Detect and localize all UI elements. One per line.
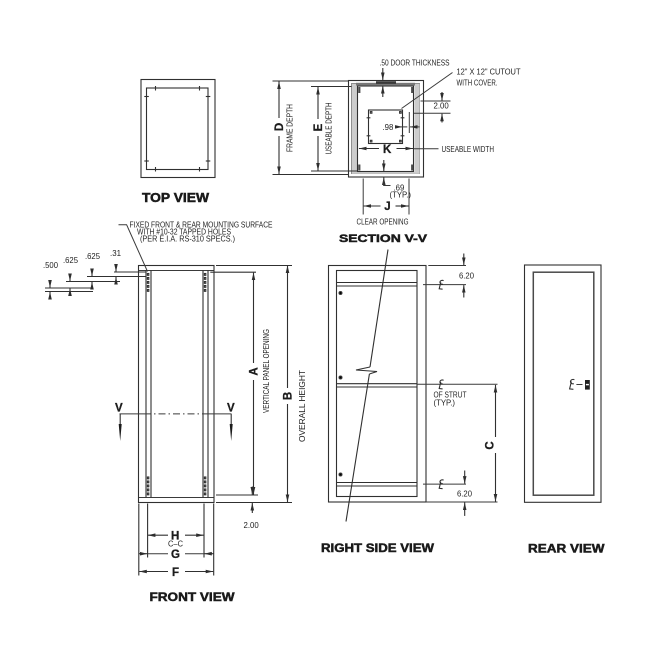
svg-text:.98: .98 — [383, 123, 394, 132]
svg-text:C: C — [485, 441, 497, 449]
svg-text:REAR VIEW: REAR VIEW — [528, 542, 605, 556]
svg-text:V: V — [227, 403, 235, 415]
svg-text:CLEAR OPENING: CLEAR OPENING — [357, 218, 409, 227]
svg-text:C–C: C–C — [168, 540, 183, 549]
svg-text:(TYP.): (TYP.) — [390, 191, 412, 200]
svg-text:B: B — [283, 392, 295, 400]
svg-text:G: G — [171, 549, 180, 561]
svg-text:USEABLE DEPTH: USEABLE DEPTH — [325, 103, 334, 155]
svg-text:.50 DOOR THICKNESS: .50 DOOR THICKNESS — [380, 59, 450, 68]
svg-text:FRONT VIEW: FRONT VIEW — [150, 590, 236, 604]
svg-text:.625: .625 — [63, 256, 79, 265]
svg-text:V: V — [115, 403, 123, 415]
svg-text:SECTION V-V: SECTION V-V — [339, 233, 428, 245]
svg-text:(PER E.I.A. RS-310 SPECS.): (PER E.I.A. RS-310 SPECS.) — [140, 235, 235, 244]
svg-text:F: F — [172, 567, 179, 579]
svg-text:VERTICAL PANEL OPENING: VERTICAL PANEL OPENING — [262, 329, 271, 413]
svg-text:(TYP.): (TYP.) — [434, 398, 456, 407]
svg-text:6.20: 6.20 — [459, 272, 475, 281]
svg-text:K: K — [383, 144, 392, 156]
svg-text:J: J — [384, 201, 390, 213]
svg-text:RIGHT SIDE VIEW: RIGHT SIDE VIEW — [321, 541, 435, 555]
svg-text:USEABLE WIDTH: USEABLE WIDTH — [442, 145, 495, 154]
svg-text:OVERALL HEIGHT: OVERALL HEIGHT — [298, 370, 307, 442]
svg-text:.500: .500 — [43, 261, 59, 270]
svg-text:TOP VIEW: TOP VIEW — [142, 191, 209, 205]
svg-text:2.00: 2.00 — [434, 102, 450, 111]
svg-text:D: D — [274, 123, 286, 131]
svg-text:E: E — [313, 123, 325, 131]
svg-text:12" X 12" CUTOUT: 12" X 12" CUTOUT — [457, 68, 521, 77]
svg-text:.31: .31 — [110, 249, 121, 258]
svg-text:.625: .625 — [85, 252, 101, 261]
svg-text:FRAME DEPTH: FRAME DEPTH — [286, 104, 295, 152]
svg-text:2.00: 2.00 — [244, 521, 260, 530]
svg-text:WITH COVER.: WITH COVER. — [457, 79, 498, 88]
svg-text:A: A — [249, 367, 261, 375]
svg-text:6.20: 6.20 — [457, 489, 473, 498]
